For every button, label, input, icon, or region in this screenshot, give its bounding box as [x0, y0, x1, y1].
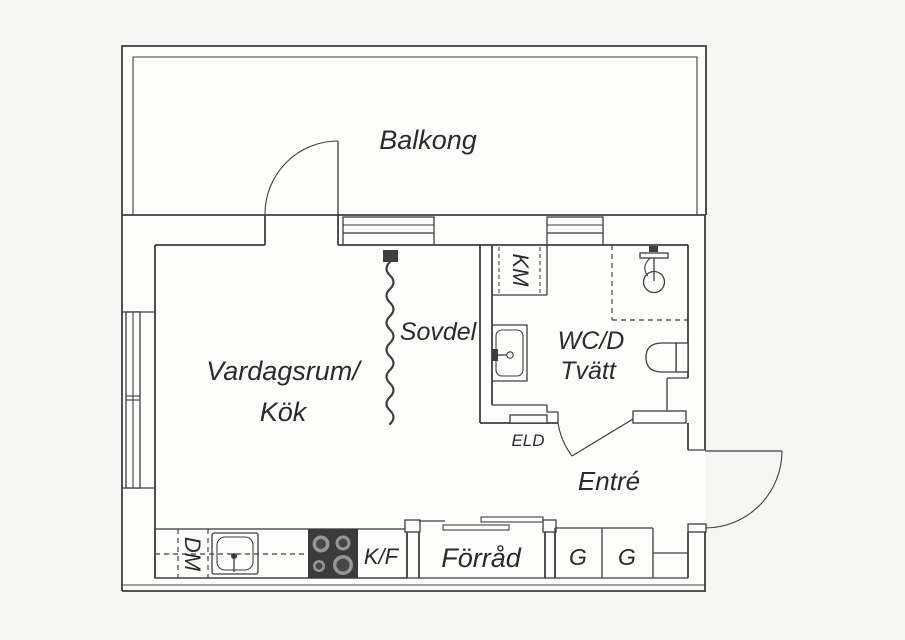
burner-br-center: [337, 559, 350, 572]
toilet-tank: [676, 343, 688, 372]
burner-tr-center: [339, 539, 348, 548]
faucet-base: [492, 349, 498, 361]
shower-mount: [649, 246, 658, 252]
apartment-floor: [122, 215, 705, 591]
burner-tl-center: [316, 539, 326, 549]
storage-jamb-right: [543, 520, 556, 532]
label-dishwasher: DM: [180, 537, 205, 572]
entry-door-jamb-bottom: [688, 524, 706, 532]
label-living-line1: Vardagsrum/: [206, 356, 362, 386]
bathroom-door-sill: [633, 411, 686, 423]
label-fridge-freezer: K/F: [364, 544, 400, 569]
toilet-bowl: [646, 343, 676, 372]
entry-door-swing-arc: [705, 451, 782, 528]
label-living-line2: Kök: [260, 397, 308, 427]
label-bathroom-line1: WC/D: [558, 327, 625, 355]
label-wardrobe-1: G: [569, 544, 587, 570]
stove-icon: [308, 529, 358, 578]
sink-faucet-head: [231, 553, 237, 559]
electrical-cabinet: [510, 415, 547, 423]
storage-jamb-left: [405, 520, 420, 532]
label-balcony: Balkong: [379, 125, 477, 155]
label-wardrobe-2: G: [618, 544, 636, 570]
toilet: [646, 343, 688, 372]
label-storage: Förråd: [441, 543, 522, 573]
label-bathroom-line2: Tvätt: [560, 357, 617, 385]
label-electrical: ELD: [511, 431, 544, 450]
burner-bl-center: [316, 563, 323, 570]
floorplan-canvas: Balkong Vardagsrum/ Kök Sovdel WC/D Tvät…: [0, 0, 905, 640]
label-entrance: Entré: [578, 466, 640, 496]
label-washer: KM: [508, 254, 533, 288]
floorplan-svg: Balkong Vardagsrum/ Kök Sovdel WC/D Tvät…: [0, 0, 905, 640]
curtain-mount: [383, 250, 398, 262]
label-sleeping: Sovdel: [400, 318, 478, 346]
